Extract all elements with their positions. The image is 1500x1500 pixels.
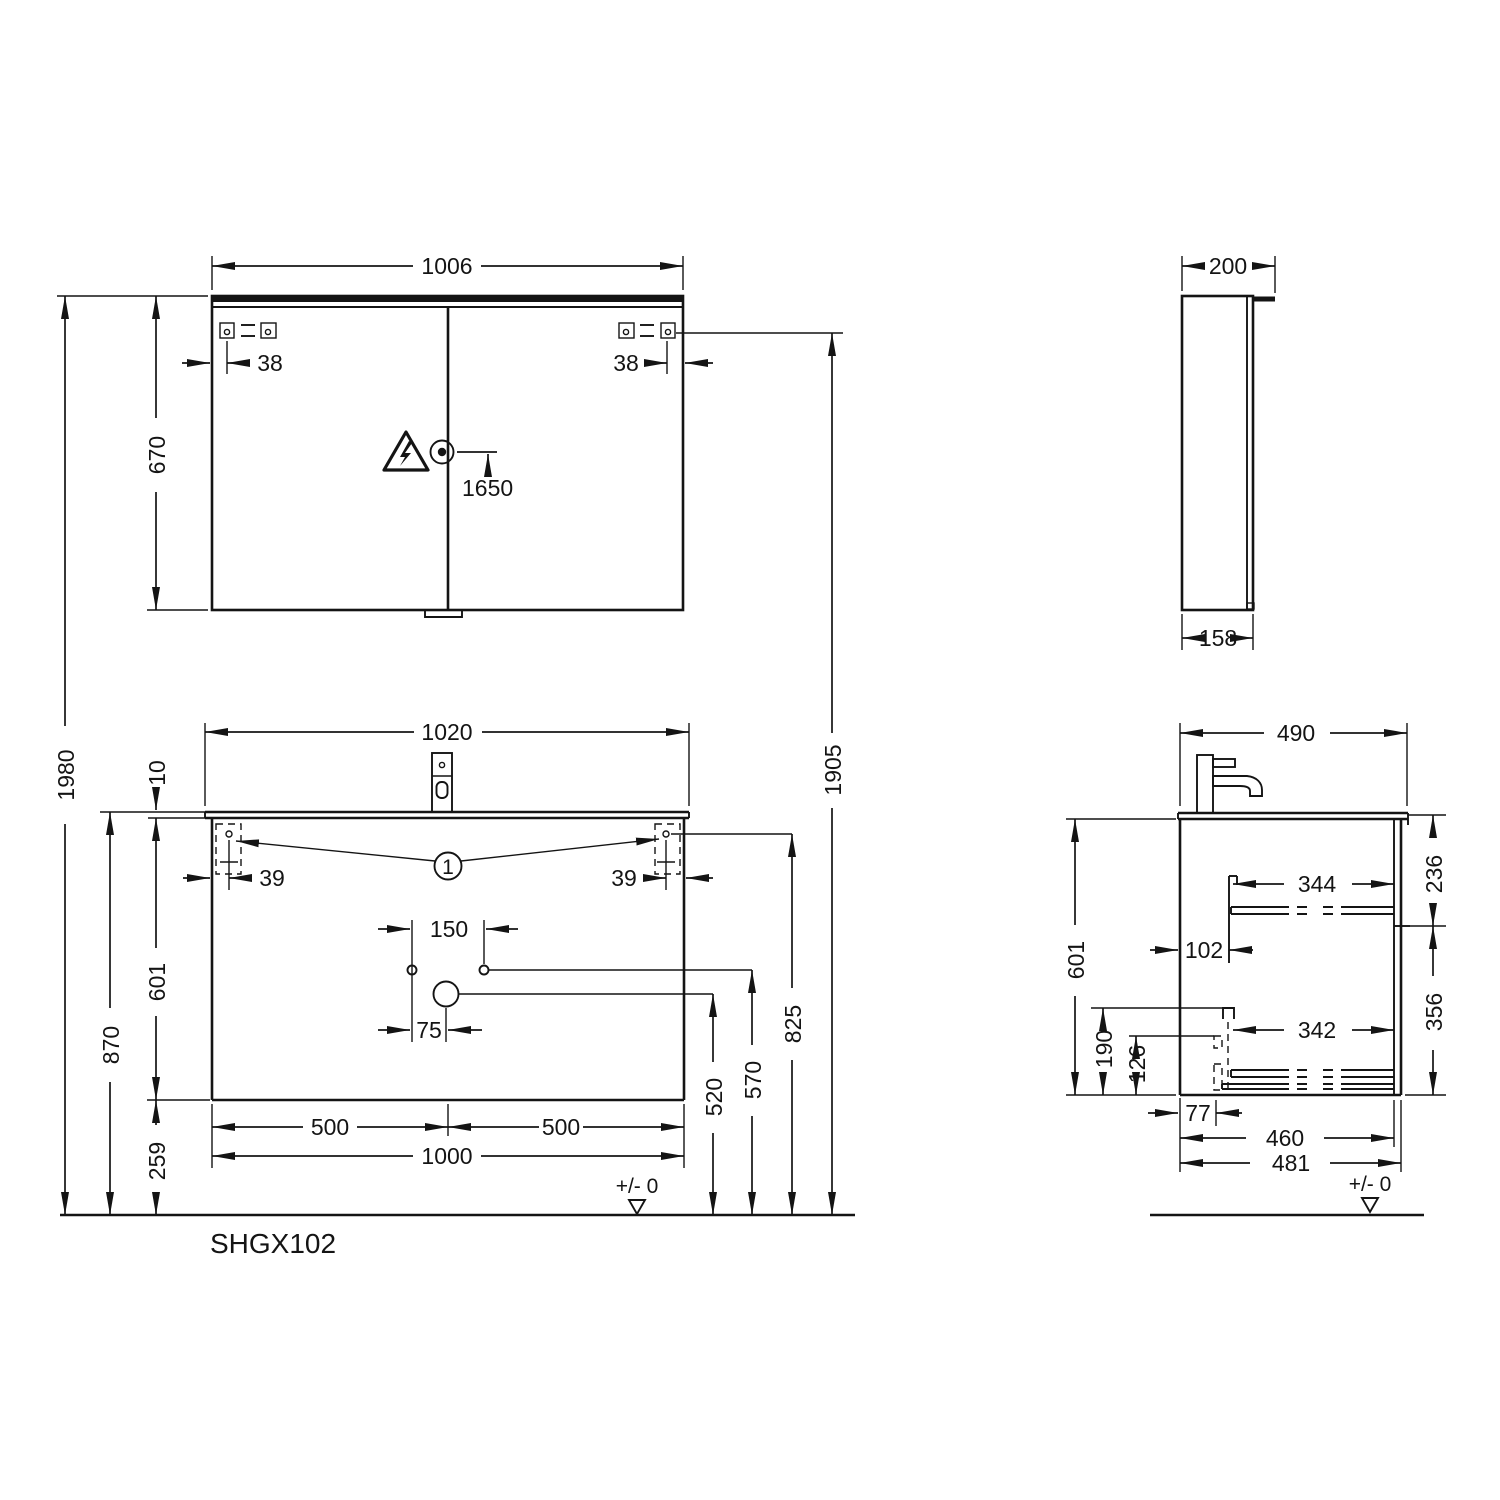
callout-number: 1 [442,856,454,879]
drawing-sheet: 1006 670 38 38 1650 [0,0,1500,1500]
dim-label: 344 [1298,871,1337,897]
hinge-plate [619,323,634,338]
dim-label: 481 [1272,1150,1310,1176]
dim-hinge-offset-left: 38 [182,341,283,376]
dim-label: 236 [1421,855,1447,893]
dim-label: 259 [144,1142,170,1180]
product-code: SHGX102 [210,1228,336,1259]
dim-depth-chain: 77 460 481 [1148,1098,1401,1176]
dim-mount-offset-right: 39 [611,865,713,891]
dim-upper-rail-length: 344 [1233,871,1394,897]
hidden-clip [1214,1064,1222,1090]
dim-label: 601 [1063,941,1089,979]
basin-side [1178,813,1408,825]
dim-cabinet-widths: 500 500 1000 [212,1104,684,1169]
datum-label: +/- 0 [616,1175,659,1198]
datum-triangle-icon [1362,1198,1378,1212]
dim-label: 356 [1421,993,1447,1031]
tap-spout-front [437,782,448,798]
bracket-hole [226,831,232,837]
datum-marker-front: +/- 0 [616,1175,659,1214]
tap-side [1197,755,1262,813]
mirror-cabinet-side-view: 200 158 [1182,253,1275,651]
dim-label: 1006 [421,253,472,279]
dim-tap-hole-spacing: 150 [378,916,518,942]
waste-hole [434,982,459,1007]
hidden-clip [1214,1036,1222,1048]
tap-lever [1213,759,1235,767]
dim-label: 77 [1185,1100,1211,1126]
datum-marker-side: +/- 0 [1349,1173,1392,1212]
dim-lower-rail-length: 342 [1233,1017,1394,1043]
basin-front [205,812,689,818]
mirror-front-hinge-right [619,323,675,338]
dim-label: 38 [613,350,639,376]
hinge-screw [623,329,628,334]
dim-label: 460 [1266,1125,1304,1151]
dim-label: 1020 [421,719,472,745]
vanity-front-view: 1 39 39 150 75 [53,296,846,1215]
mirror-front-hinge-left [220,323,276,338]
dim-label: 1650 [462,475,513,501]
dim-label: 570 [740,1061,766,1099]
power-socket-symbol [431,441,454,464]
datum-triangle-icon [629,1200,645,1214]
bracket-hole [663,831,669,837]
dim-label: 126 [1124,1045,1150,1083]
dim-label: 520 [701,1078,727,1116]
dim-column-left: 1980 870 10 601 259 [53,296,210,1215]
dim-waste-offset: 75 [378,1017,482,1043]
dim-socket-height: 1650 [457,452,513,501]
dim-drawer-zones: 236 356 [1405,815,1447,1095]
datum-label: +/- 0 [1349,1173,1392,1196]
dim-label: 10 [144,760,170,786]
electric-hazard-icon [384,432,428,470]
hinge-plate [261,323,276,338]
tap-spout-side [1213,776,1262,796]
hinge-screw [665,329,670,334]
dim-side-cabinet-height: 601 [1063,819,1176,1095]
dim-label: 39 [611,865,637,891]
leader-line [236,841,435,861]
supply-hole [480,966,489,975]
dim-label: 1000 [421,1143,472,1169]
hinge-screw [265,329,270,334]
dim-label: 102 [1185,937,1223,963]
dim-label: 1980 [53,749,79,800]
hinge-plate [220,323,234,338]
mirror-side-body [1182,296,1275,610]
dim-mirror-depth-body: 158 [1182,614,1253,651]
dim-label: 200 [1209,253,1247,279]
dim-label: 601 [144,963,170,1001]
runner-clip [1223,1008,1234,1019]
dim-label: 500 [542,1114,580,1140]
dim-label: 38 [257,350,283,376]
dim-label: 500 [311,1114,349,1140]
dim-label: 342 [1298,1017,1336,1043]
lightning-bolt [400,441,412,466]
technical-drawing-canvas: 1006 670 38 38 1650 [0,0,1500,1500]
dim-column-right: 520 570 825 1905 [459,333,846,1215]
tap-front [432,753,452,812]
dim-label: 490 [1277,720,1315,746]
mirror-side-outline [1182,296,1253,610]
dim-mirror-depth-top: 200 [1182,253,1275,293]
dim-mount-offset-left: 39 [183,865,285,891]
dim-label: 75 [416,1017,442,1043]
dim-label: 39 [259,865,285,891]
dim-mirror-width: 1006 [212,253,683,290]
dim-vanity-depth: 490 [1180,720,1407,806]
mirror-front-body [212,295,683,617]
dim-label: 870 [98,1026,124,1064]
dim-hinge-offset-right: 38 [613,341,713,376]
wall-bracket-left [216,824,241,890]
dim-label: 158 [1199,625,1237,651]
mirror-cabinet-front-view: 1006 670 38 38 1650 [57,253,713,617]
leader-line [461,839,659,861]
socket-dot [438,448,446,456]
dim-rail-setback: 102 [1150,937,1253,963]
floor-and-datum: +/- 0 +/- 0 SHGX102 [60,1173,1424,1259]
mirror-light-strip [212,295,683,302]
dim-label: 190 [1091,1030,1117,1068]
tap-hole [439,762,444,767]
vanity-side-view: 490 601 344 102 342 [1063,720,1447,1176]
dim-label: 670 [144,436,170,474]
hinge-plate [661,323,675,338]
dim-label: 150 [430,916,468,942]
dim-label: 825 [780,1005,806,1043]
dim-trap-heights: 190 126 [1091,1008,1223,1095]
hinge-screw [224,329,229,334]
dim-mirror-height: 670 [57,296,208,610]
tap-body-side [1197,755,1213,813]
callout-1: 1 [236,839,659,880]
dim-label: 1905 [820,744,846,795]
